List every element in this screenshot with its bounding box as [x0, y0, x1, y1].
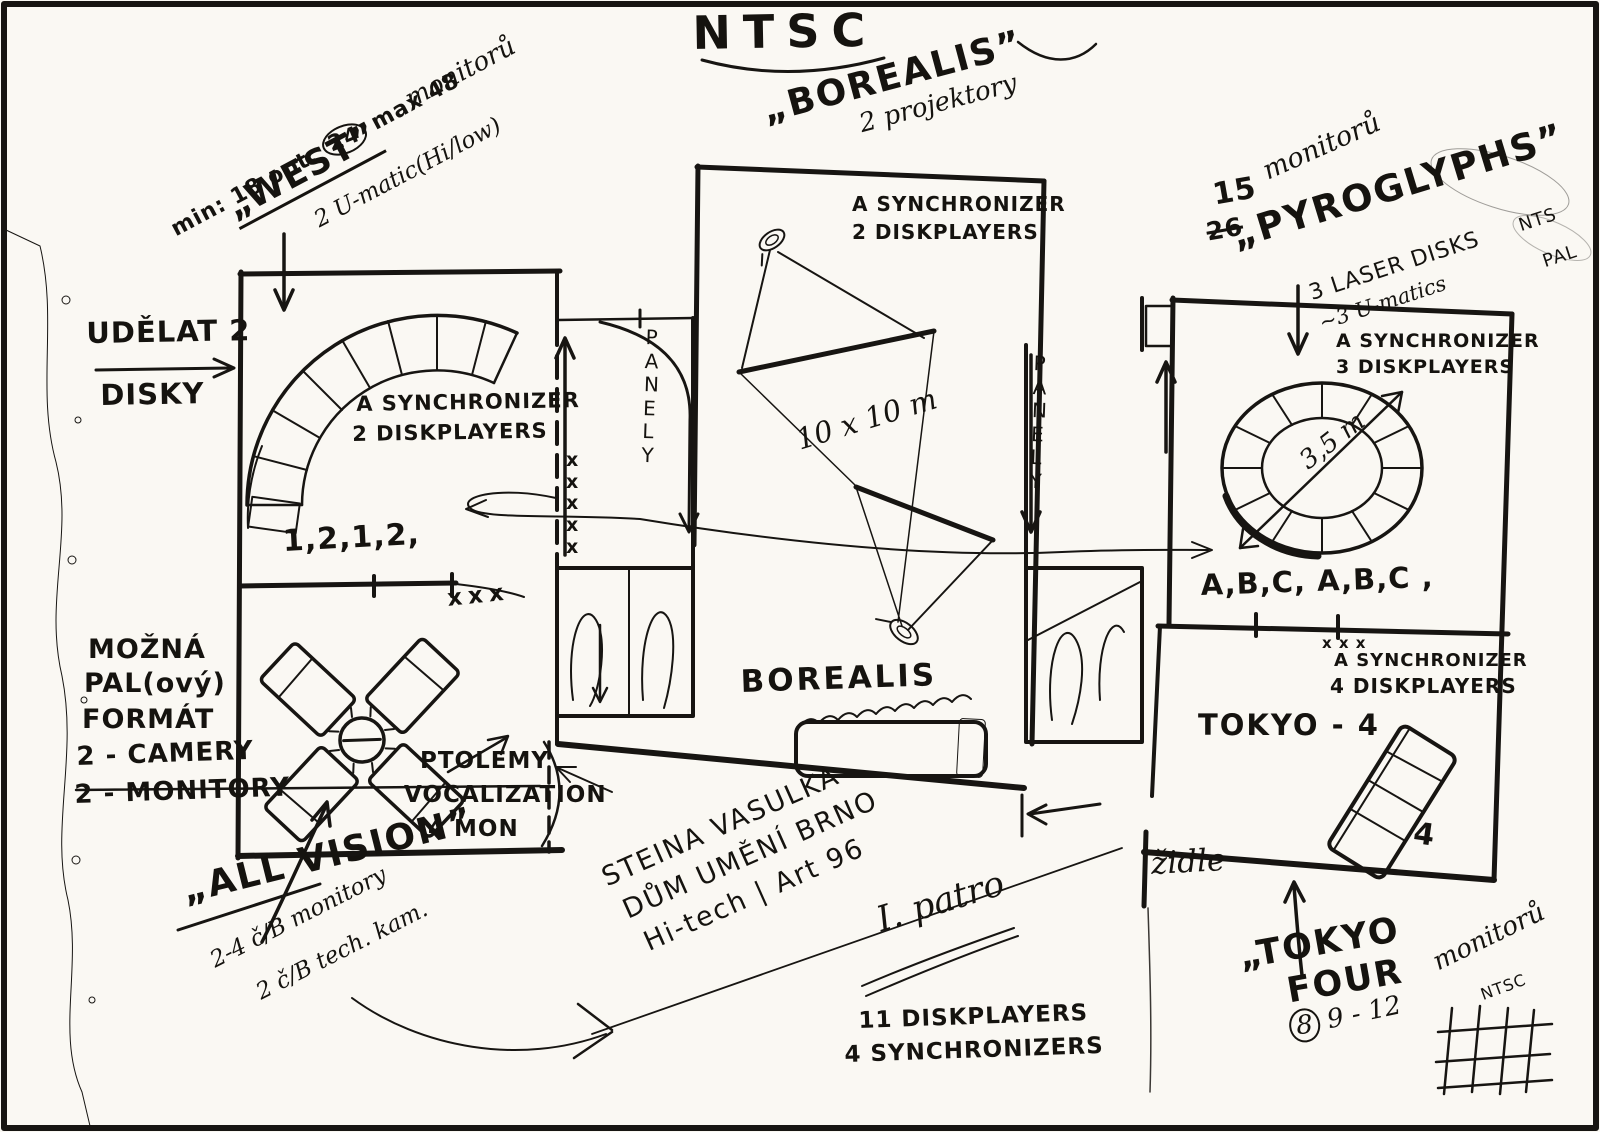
zidle-label: židle: [1150, 842, 1226, 882]
tokyo-count-circled: 8: [1288, 1007, 1322, 1044]
x-column: x x x x x: [566, 450, 579, 558]
borealis-sync: A SYNCHRONIZER: [852, 192, 1066, 216]
toner-smudge: [6, 230, 95, 1126]
ptolemy-line1: PTOLEMY: [420, 748, 549, 774]
tokyo-diskplayers: 4 DISKPLAYERS: [1330, 674, 1517, 698]
pyroglyphs-sync: A SYNCHRONIZER: [1336, 330, 1540, 352]
borealis-room: [542, 166, 1044, 846]
ptolemy-line3: 4 MON: [428, 816, 519, 842]
tokyo-sync: A SYNCHRONIZER: [1334, 650, 1528, 671]
udelat-note: UDĚLAT 2: [86, 313, 251, 350]
west-room-sequence: 1,2,1,2,: [282, 517, 421, 559]
borealis-diskplayers: 2 DISKPLAYERS: [852, 220, 1039, 244]
monitor-ring: [1222, 383, 1422, 556]
pyroglyphs-diskplayers: 3 DISKPLAYERS: [1336, 356, 1514, 378]
west-room-sync: A SYNCHRONIZER: [356, 388, 580, 416]
tokyo-room-label: TOKYO - 4: [1198, 708, 1380, 742]
sketch-paper: NTSC min: 18 opt. 24 max 48 monitorů „WE…: [0, 0, 1600, 1132]
page-title: NTSC: [692, 3, 878, 60]
camery-note: 2 - CAMERY: [76, 736, 254, 772]
disky-note: DISKY: [100, 376, 205, 412]
pyroglyphs-count: 15: [1210, 170, 1259, 212]
format-note: FORMÁT: [82, 704, 214, 735]
borealis-floor-label: BOREALIS: [740, 657, 938, 700]
west-room-diskplayers: 2 DISKPLAYERS: [352, 419, 548, 446]
pal-note: PAL(ový): [84, 668, 226, 699]
ptolemy-line2: VOCALIZATION: [404, 782, 607, 808]
mozna-note: MOŽNÁ: [88, 634, 206, 665]
